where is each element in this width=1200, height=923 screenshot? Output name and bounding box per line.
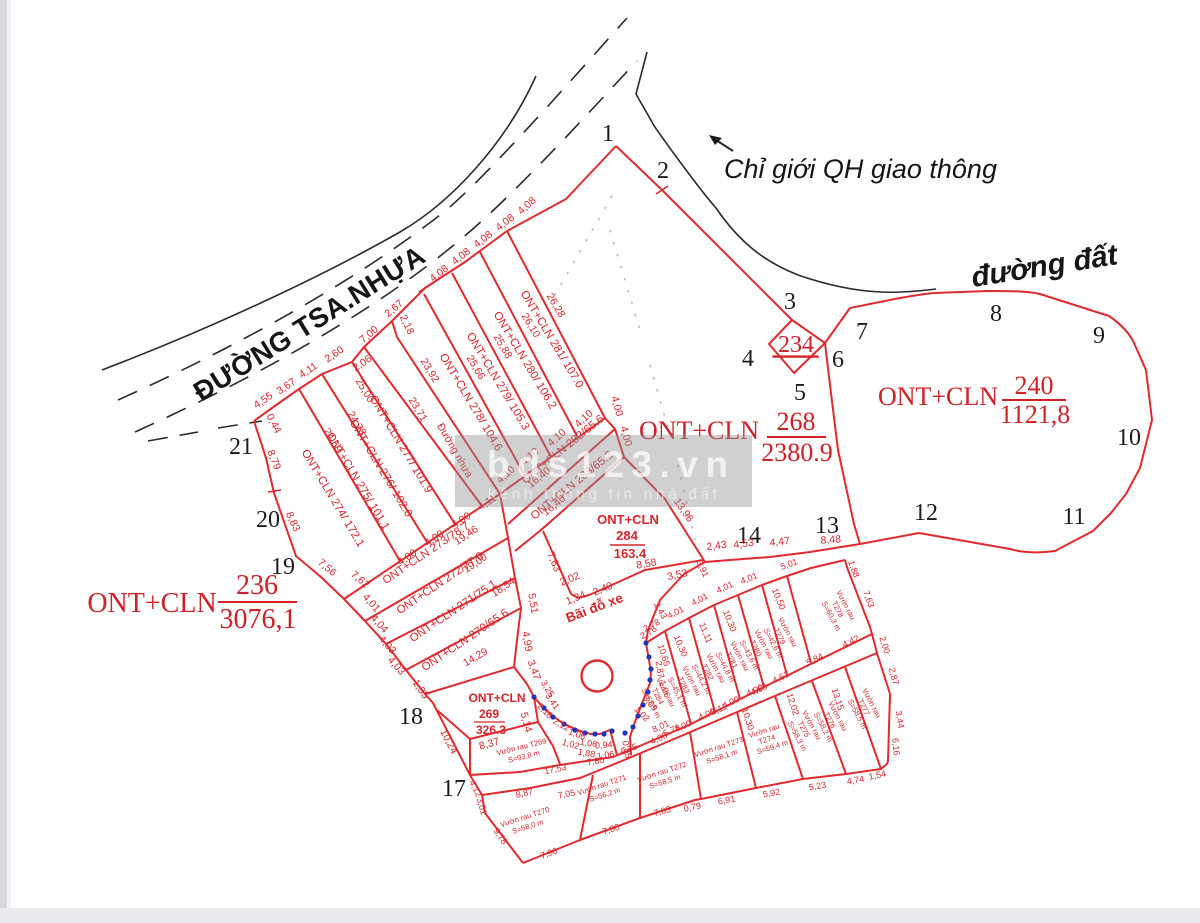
svg-text:12: 12 (914, 500, 938, 526)
svg-text:8: 8 (990, 301, 1002, 327)
svg-text:4,47: 4,47 (769, 535, 791, 549)
svg-text:5: 5 (794, 380, 806, 406)
svg-text:17: 17 (442, 776, 466, 802)
svg-text:6: 6 (832, 347, 844, 373)
svg-text:20: 20 (256, 507, 280, 533)
svg-text:Chỉ giới QH giao thông: Chỉ giới QH giao thông (724, 154, 997, 184)
svg-text:2: 2 (657, 158, 669, 184)
svg-text:240: 240 (1015, 371, 1054, 400)
svg-text:kênh thông tin nhà đất: kênh thông tin nhà đất (488, 486, 721, 503)
svg-text:284: 284 (616, 528, 638, 543)
svg-text:3: 3 (784, 289, 796, 315)
svg-text:6,16: 6,16 (890, 738, 901, 756)
svg-text:3076,1: 3076,1 (220, 604, 297, 635)
svg-text:234: 234 (778, 332, 814, 358)
svg-text:ONT+CLN: ONT+CLN (87, 588, 216, 619)
svg-text:bds123.vn: bds123.vn (487, 444, 735, 485)
svg-text:10: 10 (1117, 425, 1141, 451)
svg-text:18: 18 (399, 704, 423, 730)
svg-text:ONT+CLN: ONT+CLN (597, 512, 659, 527)
svg-text:7: 7 (856, 319, 868, 345)
svg-text:1: 1 (602, 121, 614, 147)
svg-text:8,48: 8,48 (820, 533, 841, 546)
svg-text:236: 236 (236, 570, 278, 601)
svg-text:21: 21 (229, 434, 253, 460)
svg-text:4: 4 (742, 346, 754, 372)
svg-text:1121,8: 1121,8 (1000, 400, 1071, 429)
svg-text:ONT+CLN: ONT+CLN (469, 691, 526, 705)
svg-text:ONT+CLN: ONT+CLN (878, 382, 998, 411)
svg-text:9: 9 (1093, 323, 1105, 349)
svg-text:268: 268 (777, 407, 816, 436)
svg-text:11: 11 (1062, 504, 1085, 530)
svg-text:326.3: 326.3 (476, 723, 506, 737)
svg-text:2380.9: 2380.9 (761, 438, 833, 467)
svg-text:269: 269 (479, 707, 499, 721)
